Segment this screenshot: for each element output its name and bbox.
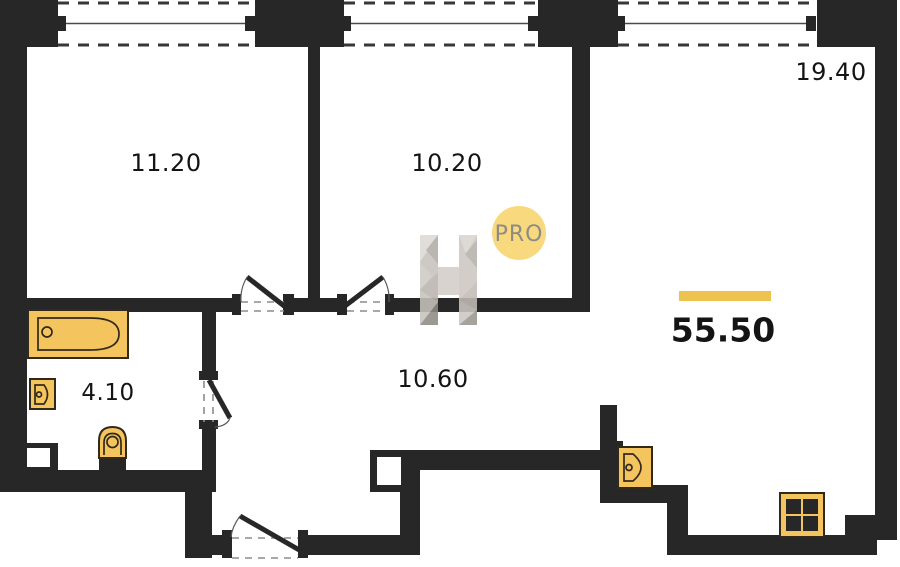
- area-label-hall: 10.60: [397, 365, 468, 393]
- area-label-bathroom: 4.10: [81, 380, 134, 406]
- watermark-pro-badge: PRO: [492, 206, 546, 260]
- floor-plan-drawing: PRO: [0, 0, 900, 567]
- kitchen-sink-icon: [618, 447, 652, 488]
- bathroom-sink-icon: [30, 379, 55, 409]
- floor-plan: PRO 11.20 10.20 19.40 4.10 10.60 55.50: [0, 0, 900, 567]
- duct-shaft-bathroom: [27, 443, 58, 470]
- total-area-underline: [679, 291, 771, 301]
- stove-icon: [780, 493, 824, 537]
- total-area-label: 55.50: [671, 311, 775, 350]
- window-1: [56, 3, 255, 45]
- area-label-room-1: 11.20: [130, 149, 201, 177]
- window-3: [615, 3, 817, 45]
- watermark-pro-text: PRO: [495, 222, 544, 247]
- door-bathroom: [204, 380, 230, 427]
- duct-shaft-hall: [370, 450, 408, 492]
- area-label-living-room: 19.40: [795, 58, 866, 86]
- door-room-1: [241, 277, 288, 311]
- toilet-icon: [99, 427, 126, 472]
- door-room-2: [341, 277, 389, 311]
- area-label-room-2: 10.20: [411, 149, 482, 177]
- window-2: [341, 3, 538, 45]
- door-entrance: [231, 516, 301, 558]
- bathtub-icon: [28, 310, 128, 358]
